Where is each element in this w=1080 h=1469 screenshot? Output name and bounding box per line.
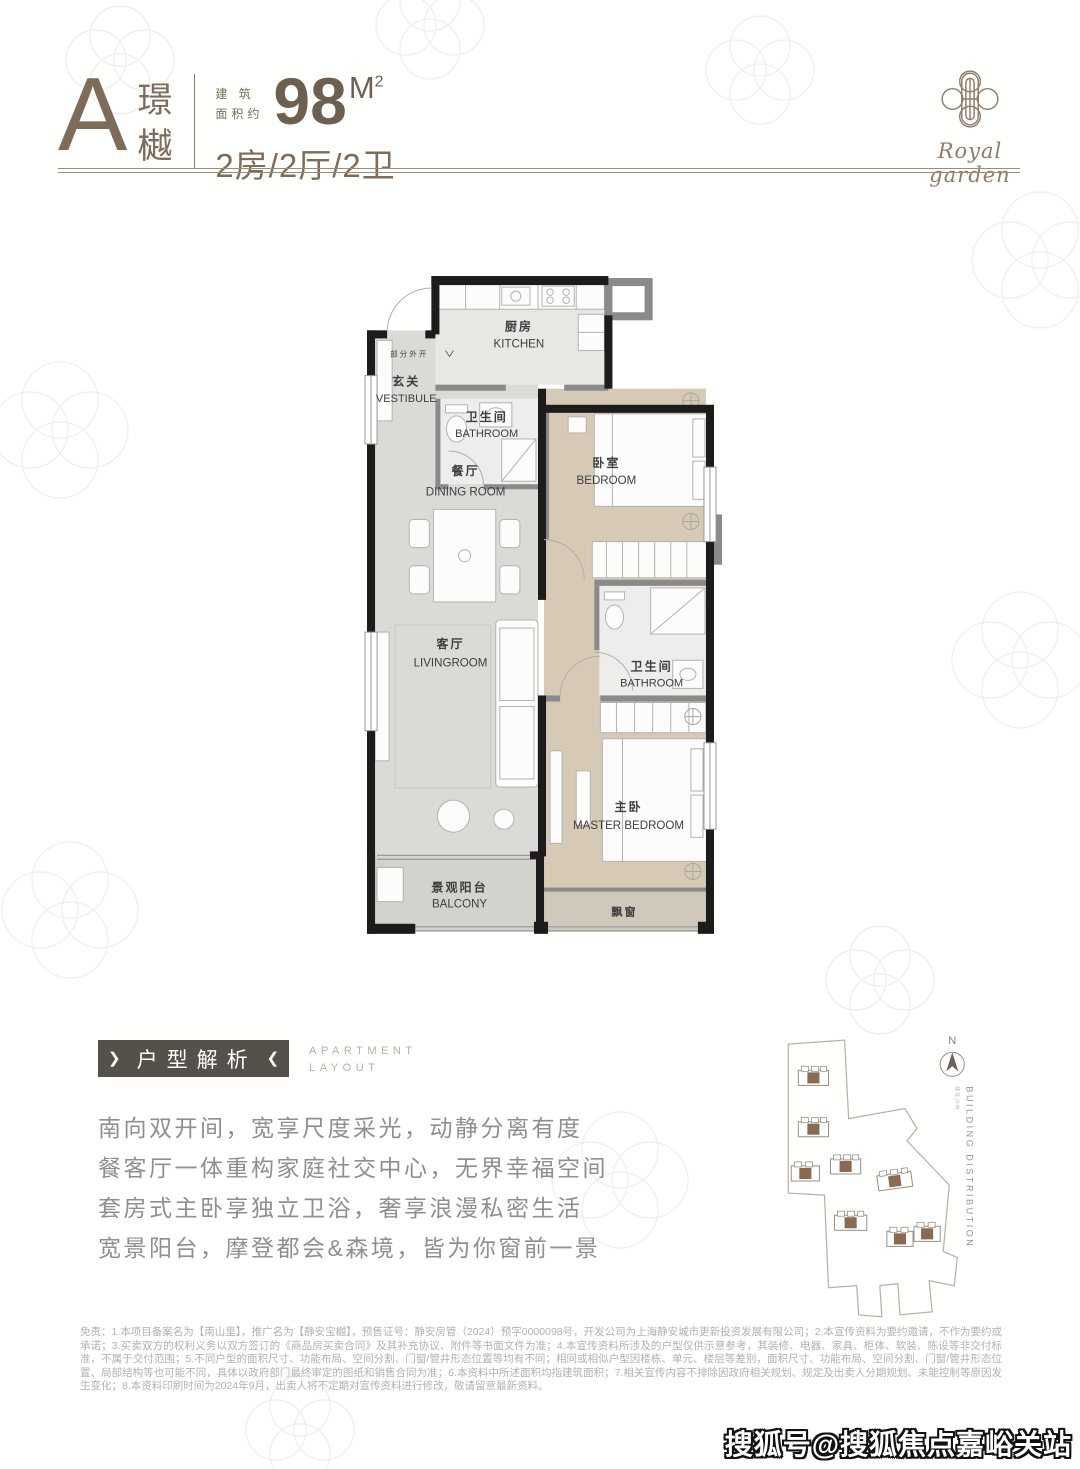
bedroom-label-zh: 卧室 <box>592 455 620 470</box>
header-divider <box>194 74 195 168</box>
analysis-line-3: 套房式主卧享独立卫浴，奢享浪漫私密生活 <box>98 1197 608 1220</box>
analysis-description: 南向双开间，宽享尺度采光，动静分离有度 餐客厅一体重构家庭社交中心，无界幸福空间… <box>98 1117 608 1260</box>
kitchen-label-zh: 厨房 <box>505 318 533 333</box>
balcony-label-zh: 景观阳台 <box>430 880 487 895</box>
analysis-heading-en-line1: APARTMENT <box>309 1043 416 1060</box>
unit-type-letter: A <box>58 66 125 165</box>
area-row: 建 筑 面积约 98 M2 <box>215 68 395 134</box>
royal-garden-emblem-icon <box>937 66 1003 132</box>
apartment-analysis: ❯ 户型解析 ❮ APARTMENT LAYOUT 南向双开间，宽享尺度采光，动… <box>98 1040 608 1277</box>
siteplan-caption: BUILDING DISTRIBUTION <box>964 1086 974 1248</box>
area-unit: M2 <box>349 70 384 106</box>
chevron-left-icon: ❮ <box>267 1051 280 1066</box>
analysis-badge: ❯ 户型解析 ❮ <box>98 1040 289 1077</box>
north-compass-icon: N <box>940 1035 964 1076</box>
analysis-heading-en: APARTMENT LAYOUT <box>309 1043 416 1077</box>
building-distribution-map: N BUILDING DISTRIBUTION 楼栋分布 <box>758 1018 1060 1340</box>
area-prefix-line2: 面积约 <box>215 104 263 124</box>
brand-logo-script: Royal garden <box>903 139 1037 187</box>
kitchen-label-en: KITCHEN <box>494 338 545 350</box>
bathroom2-label-en: BATHROOM <box>620 677 683 689</box>
floorplan-drawing: 部分外开 厨房 KITCHEN 玄关 VESTIBULE 卫生间 BATHROO… <box>352 268 726 962</box>
door-note-label: 部分外开 <box>390 349 428 359</box>
analysis-heading: ❯ 户型解析 ❮ APARTMENT LAYOUT <box>98 1040 608 1077</box>
area-value: 98 <box>273 68 346 134</box>
area-prefix: 建 筑 面积约 <box>215 84 263 125</box>
living-label-en: LIVINGROOM <box>414 657 488 669</box>
bathroom1-label-en: BATHROOM <box>455 428 518 440</box>
vestibule-label-en: VESTIBULE <box>376 393 437 405</box>
baywindow-label-zh: 飘窗 <box>611 905 637 919</box>
analysis-line-1: 南向双开间，宽享尺度采光，动静分离有度 <box>98 1117 608 1140</box>
living-label-zh: 客厅 <box>436 636 464 651</box>
unit-name-char-1: 璟 <box>137 78 172 124</box>
dining-label-en: DINING ROOM <box>426 486 506 498</box>
analysis-heading-en-line2: LAYOUT <box>309 1060 416 1077</box>
ac-platform <box>604 278 652 320</box>
vestibule-label-zh: 玄关 <box>392 374 420 389</box>
floorplan-poster: A 璟 樾 建 筑 面积约 98 M2 2房/2厅/2卫 <box>0 0 1080 1469</box>
area-prefix-line1: 建 筑 <box>215 84 263 104</box>
unit-name-char-2: 樾 <box>137 124 172 170</box>
analysis-line-4: 宽景阳台，摩登都会&森境，皆为你窗前一景 <box>98 1237 608 1260</box>
analysis-badge-label: 户型解析 <box>137 1044 257 1074</box>
dining-label-zh: 餐厅 <box>451 463 480 478</box>
header-rule <box>58 168 1020 173</box>
disclaimer-text: 免责：1.本项目备案名为【南山里】，推广名为【静安宝樾】，预售证号：静安房管（2… <box>80 1326 1002 1394</box>
bathroom1-label-zh: 卫生间 <box>466 409 508 424</box>
area-unit-exponent: 2 <box>375 74 384 91</box>
north-label: N <box>948 1035 956 1047</box>
balcony-label-en: BALCONY <box>432 899 487 911</box>
unit-type-name: 璟 樾 <box>137 78 172 170</box>
master-label-en: MASTER BEDROOM <box>573 820 684 832</box>
watermark: 搜狐号@搜狐焦点嘉峪关站 <box>725 1423 1072 1463</box>
master-label-zh: 主卧 <box>614 799 642 814</box>
bedroom-label-en: BEDROOM <box>577 475 637 487</box>
siteplan-caption-zh: 楼栋分布 <box>953 1086 960 1110</box>
chevron-right-icon: ❯ <box>108 1051 121 1066</box>
layout-spec: 2房/2厅/2卫 <box>215 139 395 187</box>
bathroom2-label-zh: 卫生间 <box>631 658 673 673</box>
site-buildings <box>791 1066 940 1246</box>
analysis-line-2: 餐客厅一体重构家庭社交中心，无界幸福空间 <box>98 1157 608 1180</box>
